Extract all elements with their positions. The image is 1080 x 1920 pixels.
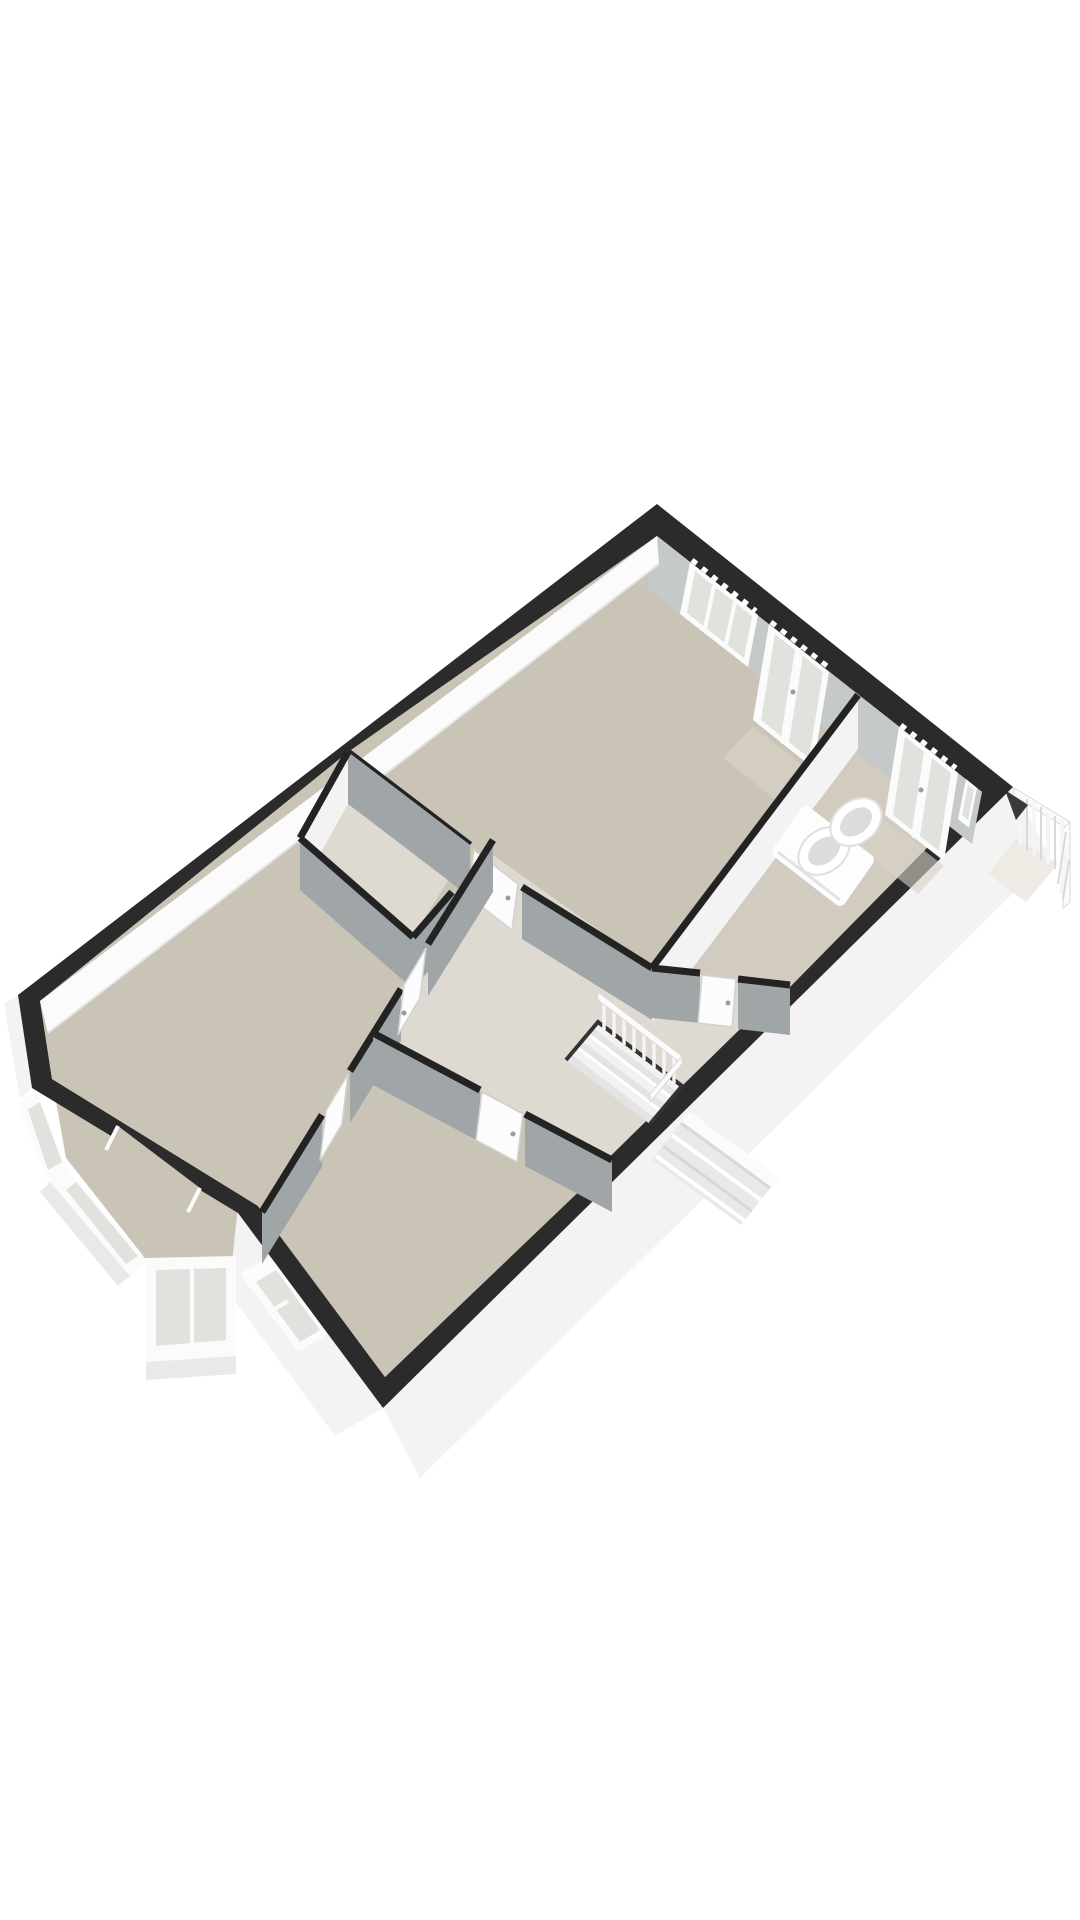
floor-plan-svg [0,0,1080,1920]
floor-plan-image [0,0,1080,1920]
bathroom-door [698,975,736,1027]
